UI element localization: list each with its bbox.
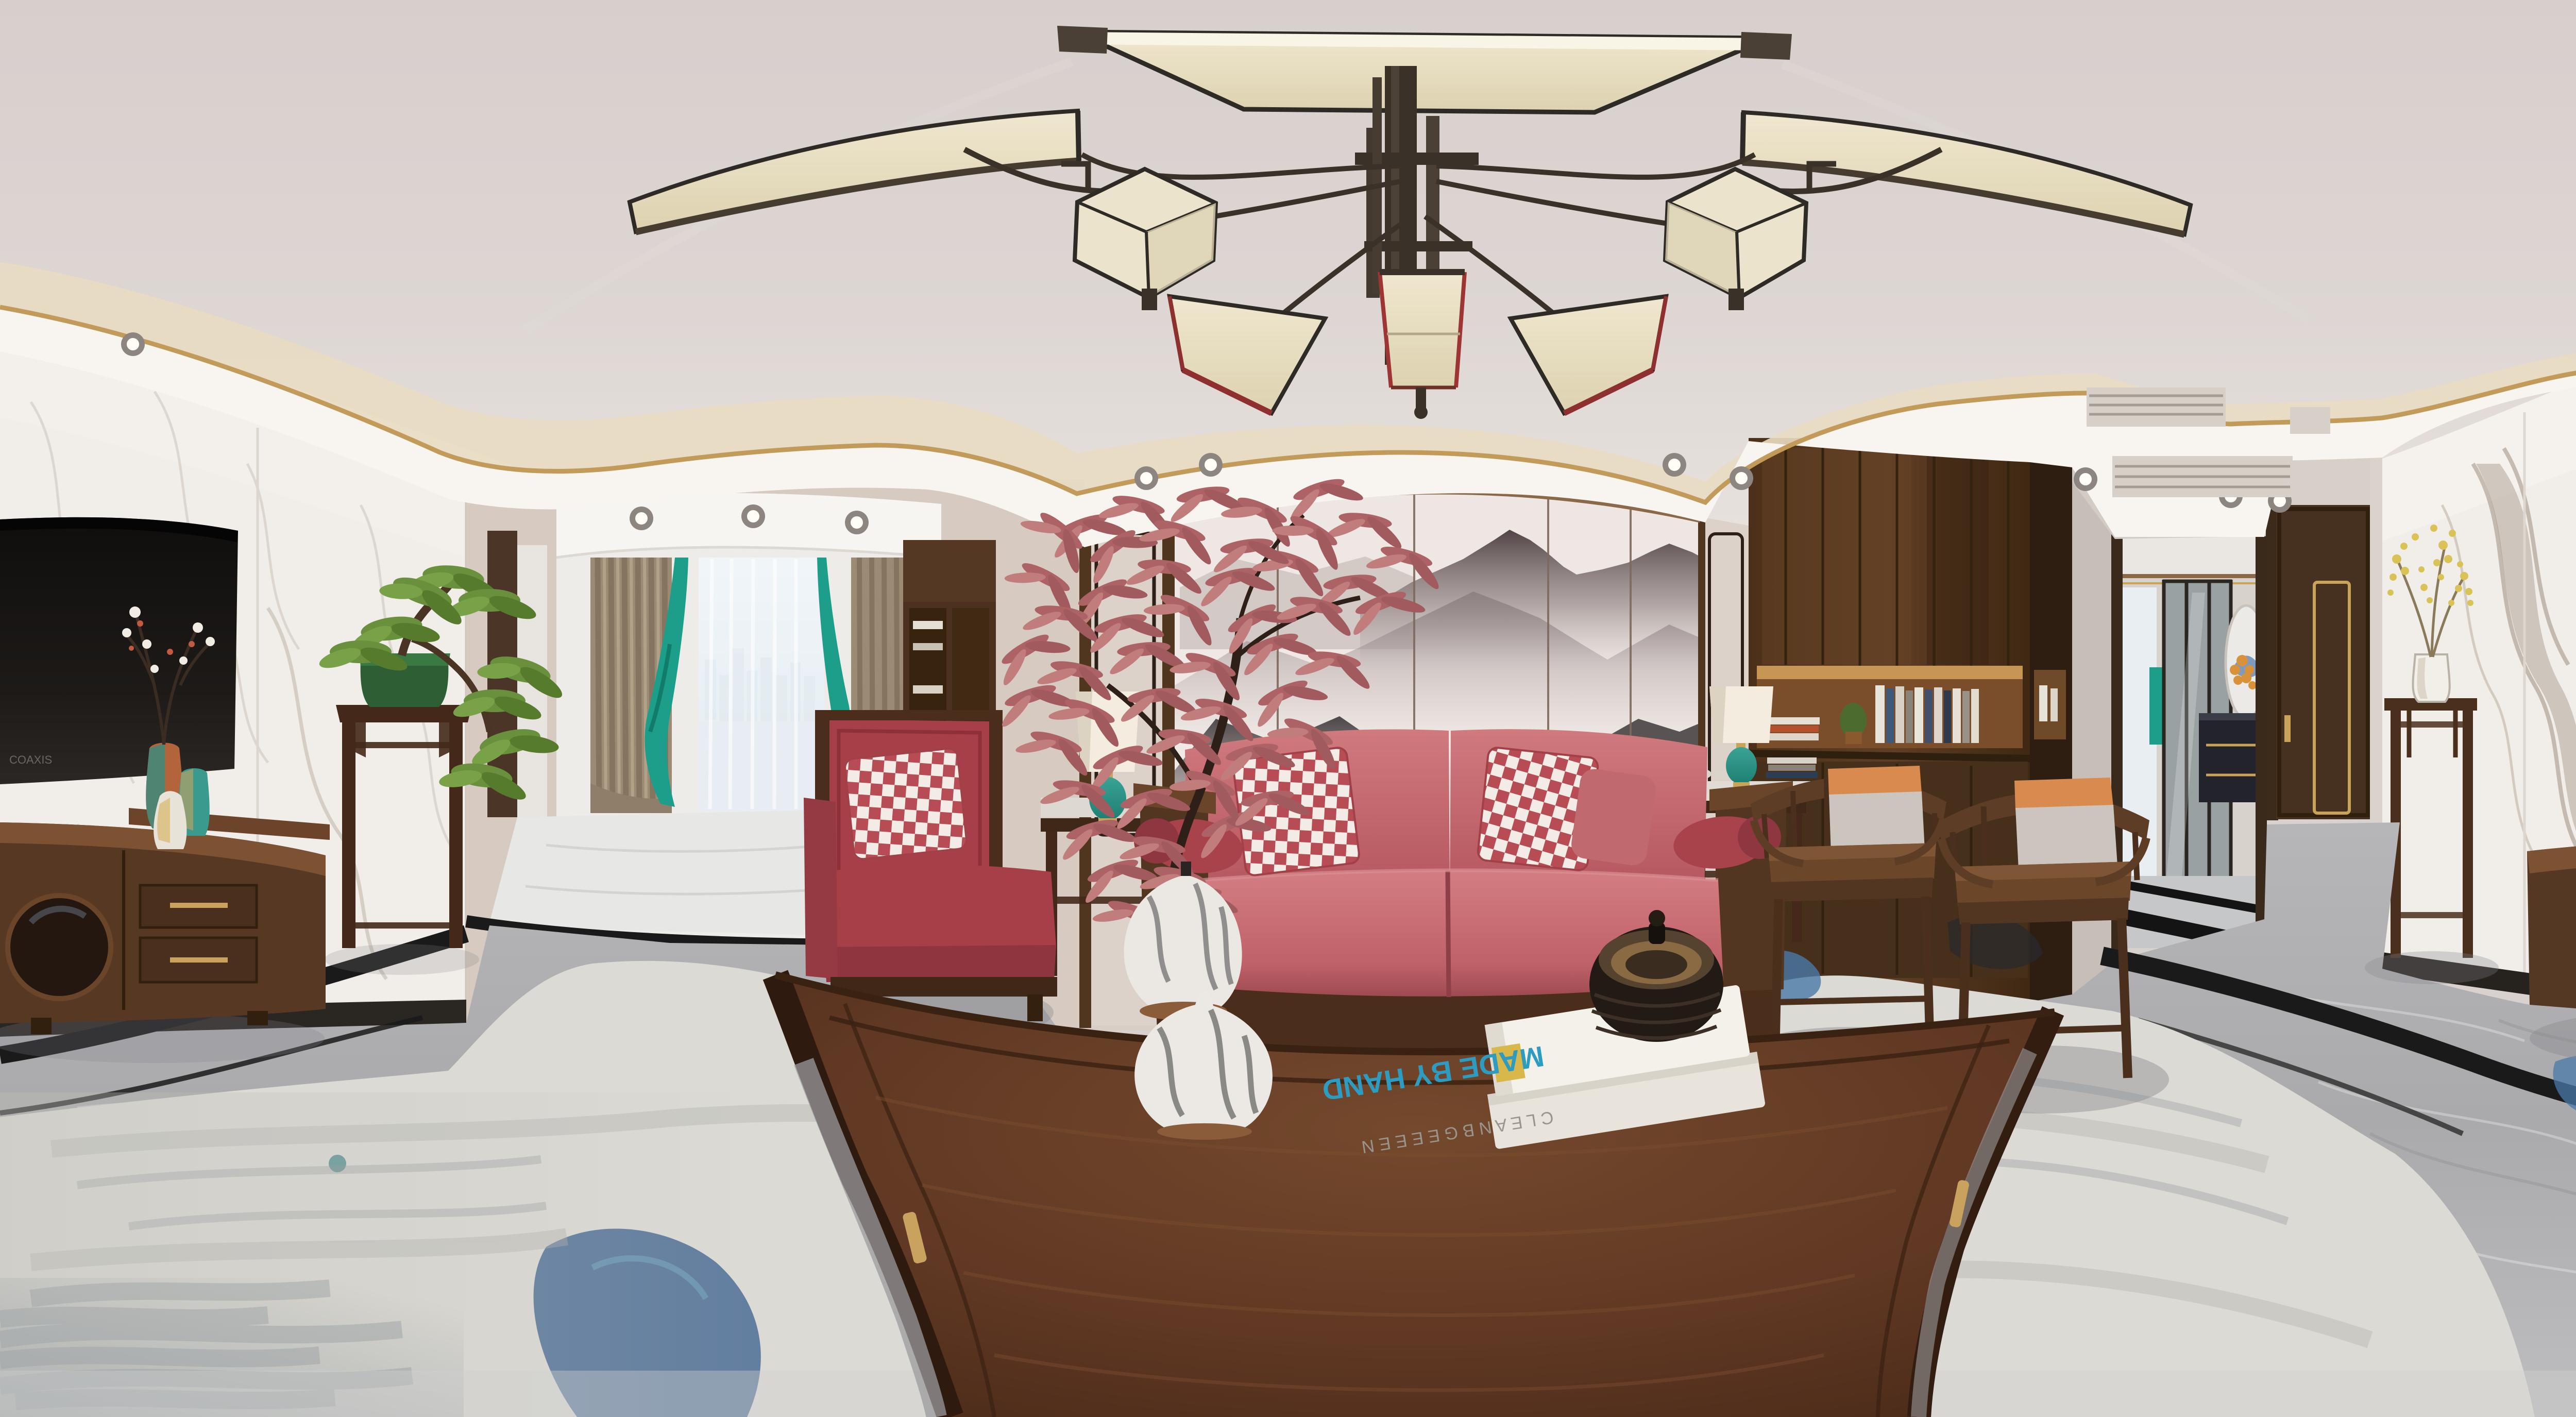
svg-text:COAXIS: COAXIS xyxy=(9,753,52,766)
